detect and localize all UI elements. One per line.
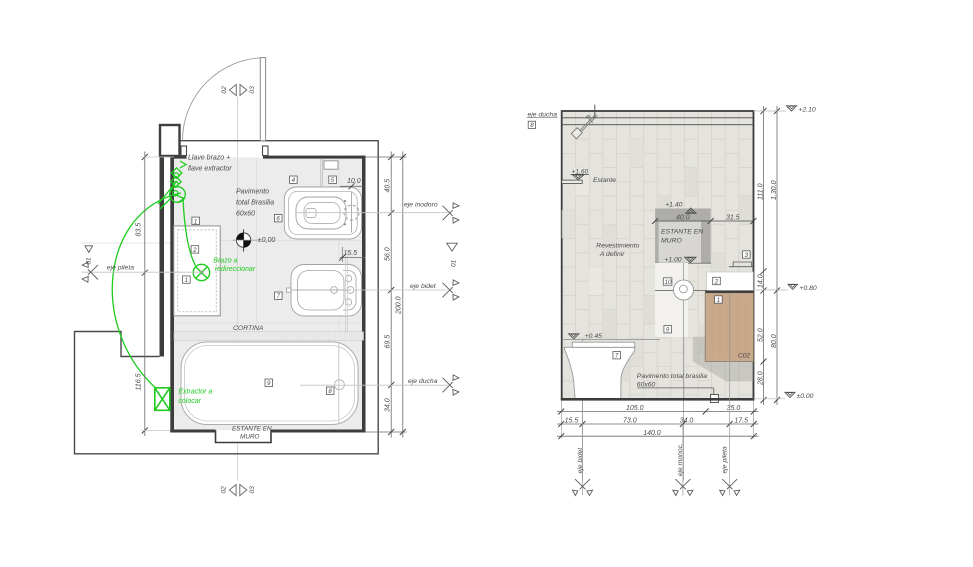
svg-text:111.0: 111.0 — [758, 183, 765, 200]
svg-text:03: 03 — [249, 486, 256, 494]
svg-text:Revestimiento: Revestimiento — [596, 243, 639, 250]
svg-text:34.0: 34.0 — [384, 398, 391, 412]
svg-text:10.0: 10.0 — [347, 178, 361, 185]
svg-text:60x60: 60x60 — [236, 211, 255, 218]
svg-text:MURO: MURO — [240, 434, 260, 441]
svg-text:eje bidet: eje bidet — [577, 447, 584, 474]
svg-text:1: 1 — [717, 297, 720, 304]
svg-text:eje pileta: eje pileta — [722, 446, 729, 473]
svg-text:A definir: A definir — [599, 251, 625, 258]
svg-text:14.0: 14.0 — [758, 274, 765, 288]
svg-text:1: 1 — [194, 218, 197, 225]
svg-text:9: 9 — [267, 380, 271, 387]
svg-text:7: 7 — [615, 353, 619, 360]
svg-text:MURO: MURO — [661, 237, 682, 244]
svg-text:200.0: 200.0 — [395, 296, 402, 315]
svg-text:2: 2 — [192, 247, 197, 254]
svg-text:+0.80: +0.80 — [800, 285, 817, 292]
svg-text:eje monoc.: eje monoc. — [677, 443, 684, 476]
svg-text:28.0: 28.0 — [758, 371, 765, 386]
svg-text:80.0: 80.0 — [771, 334, 778, 348]
svg-text:llave extractor: llave extractor — [188, 166, 232, 173]
svg-text:1: 1 — [185, 277, 188, 284]
svg-text:116.5: 116.5 — [135, 373, 142, 390]
svg-text:52.0: 52.0 — [758, 328, 765, 342]
svg-text:40.0: 40.0 — [676, 214, 690, 221]
svg-text:10: 10 — [665, 279, 672, 286]
svg-text:3: 3 — [745, 252, 749, 259]
svg-text:02: 02 — [221, 86, 228, 94]
svg-text:8: 8 — [328, 388, 332, 395]
svg-text:73.0: 73.0 — [623, 418, 637, 425]
svg-text:Extractor a: Extractor a — [178, 389, 212, 396]
svg-text:Estante: Estante — [593, 177, 616, 184]
svg-text:ESTANTE EN: ESTANTE EN — [232, 425, 272, 432]
svg-text:1,30.0: 1,30.0 — [771, 180, 778, 200]
svg-text:eje ducha: eje ducha — [528, 112, 558, 119]
svg-text:140.0: 140.0 — [643, 430, 661, 437]
svg-text:03: 03 — [249, 86, 256, 94]
svg-text:eje ducha: eje ducha — [408, 378, 438, 385]
svg-text:Brazo a: Brazo a — [213, 258, 237, 265]
svg-text:15.5: 15.5 — [565, 418, 579, 425]
svg-text:±0.00: ±0.00 — [797, 393, 814, 400]
svg-text:C02: C02 — [738, 353, 750, 360]
svg-text:total Brasilia: total Brasilia — [236, 200, 274, 207]
svg-text:34.0: 34.0 — [680, 418, 694, 425]
svg-text:+0.45: +0.45 — [585, 333, 602, 340]
svg-text:15.5: 15.5 — [344, 250, 358, 257]
svg-text:ESTANTE EN: ESTANTE EN — [661, 229, 703, 236]
svg-text:02: 02 — [221, 486, 228, 494]
svg-text:60x60: 60x60 — [637, 381, 656, 388]
svg-text:eje pileta: eje pileta — [107, 264, 134, 271]
svg-text:01: 01 — [451, 259, 458, 267]
svg-text:colocar: colocar — [178, 398, 201, 405]
svg-text:2: 2 — [714, 279, 719, 286]
svg-text:eje inodoro: eje inodoro — [404, 201, 438, 208]
svg-text:+1.40: +1.40 — [665, 201, 682, 208]
svg-text:redireccionar: redireccionar — [215, 266, 256, 273]
svg-text:35.0: 35.0 — [727, 405, 741, 412]
svg-text:56.0: 56.0 — [384, 247, 391, 261]
svg-text:9: 9 — [666, 327, 670, 334]
svg-text:45: 45 — [586, 114, 592, 119]
svg-text:5: 5 — [331, 177, 335, 184]
svg-text:83.5: 83.5 — [135, 223, 142, 237]
svg-text:40.5: 40.5 — [384, 179, 391, 193]
svg-text:6: 6 — [276, 216, 280, 223]
svg-text:eje bidet: eje bidet — [410, 283, 437, 290]
svg-text:4: 4 — [292, 177, 296, 184]
svg-text:7: 7 — [277, 293, 281, 300]
svg-text:±0,00: ±0,00 — [258, 237, 276, 244]
svg-text:17.5: 17.5 — [734, 418, 748, 425]
svg-text:Pavimento: Pavimento — [236, 189, 269, 196]
svg-text:CORTINA: CORTINA — [233, 325, 264, 332]
svg-text:Pavimento total brasilia: Pavimento total brasilia — [637, 373, 707, 380]
svg-text:+1.00: +1.00 — [664, 256, 681, 263]
svg-text:8: 8 — [530, 122, 534, 129]
svg-text:01: 01 — [86, 257, 93, 265]
svg-text:69.5: 69.5 — [384, 335, 391, 349]
svg-text:+2.10: +2.10 — [799, 107, 816, 114]
svg-text:31.5: 31.5 — [726, 214, 740, 221]
svg-text:Llave brazo +: Llave brazo + — [188, 155, 230, 162]
svg-text:105.0: 105.0 — [626, 405, 644, 412]
